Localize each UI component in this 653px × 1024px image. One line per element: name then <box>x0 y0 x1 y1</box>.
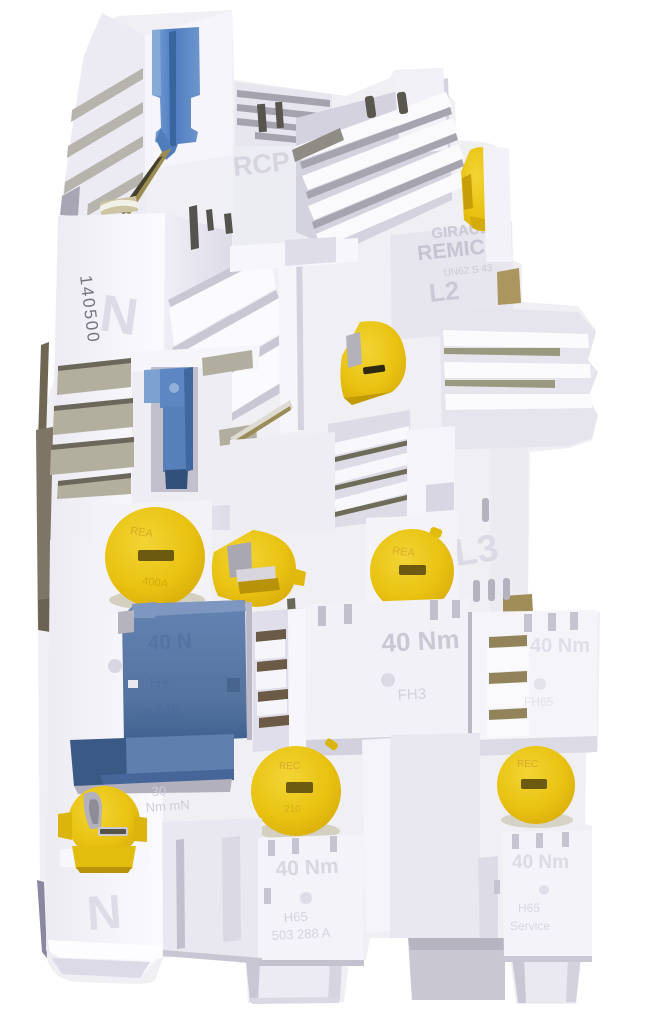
svg-text:L2: L2 <box>427 275 460 308</box>
svg-text:a 240: a 240 <box>141 701 179 720</box>
svg-text:H65: H65 <box>283 909 308 925</box>
svg-text:N: N <box>85 886 123 941</box>
svg-text:210: 210 <box>284 804 301 815</box>
svg-text:503 288 A: 503 288 A <box>271 925 331 943</box>
svg-text:REC: REC <box>517 759 538 770</box>
svg-text:FH65: FH65 <box>524 695 554 709</box>
svg-text:RCP: RCP <box>231 146 291 182</box>
svg-text:40 Nm: 40 Nm <box>275 855 339 881</box>
svg-text:H65: H65 <box>518 901 540 915</box>
svg-text:L3: L3 <box>451 527 501 575</box>
svg-text:H+: H+ <box>149 674 170 692</box>
svg-text:Service: Service <box>510 919 550 933</box>
svg-text:40 Nm: 40 Nm <box>512 852 569 873</box>
svg-text:40 Nm: 40 Nm <box>381 624 461 658</box>
svg-text:30: 30 <box>151 783 166 799</box>
svg-text:FH3: FH3 <box>397 686 426 704</box>
svg-text:REC: REC <box>279 761 300 772</box>
svg-text:REA: REA <box>392 545 416 559</box>
svg-text:40 Nm: 40 Nm <box>530 635 590 657</box>
svg-text:Nm mN: Nm mN <box>145 797 190 815</box>
svg-text:40 N: 40 N <box>147 630 193 655</box>
svg-text:N: N <box>96 284 141 347</box>
